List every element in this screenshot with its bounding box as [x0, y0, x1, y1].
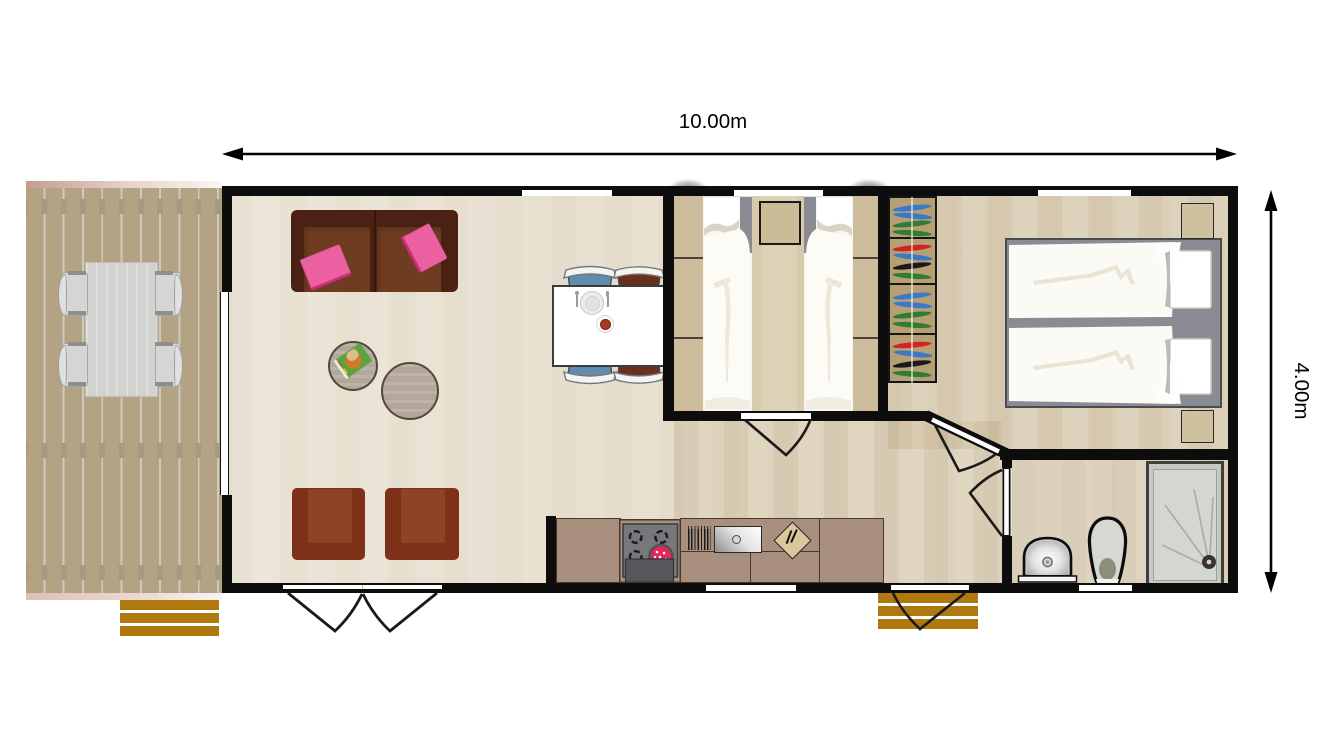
svg-text:10.00m: 10.00m [679, 110, 747, 133]
svg-text:4.00m: 4.00m [1290, 363, 1313, 420]
